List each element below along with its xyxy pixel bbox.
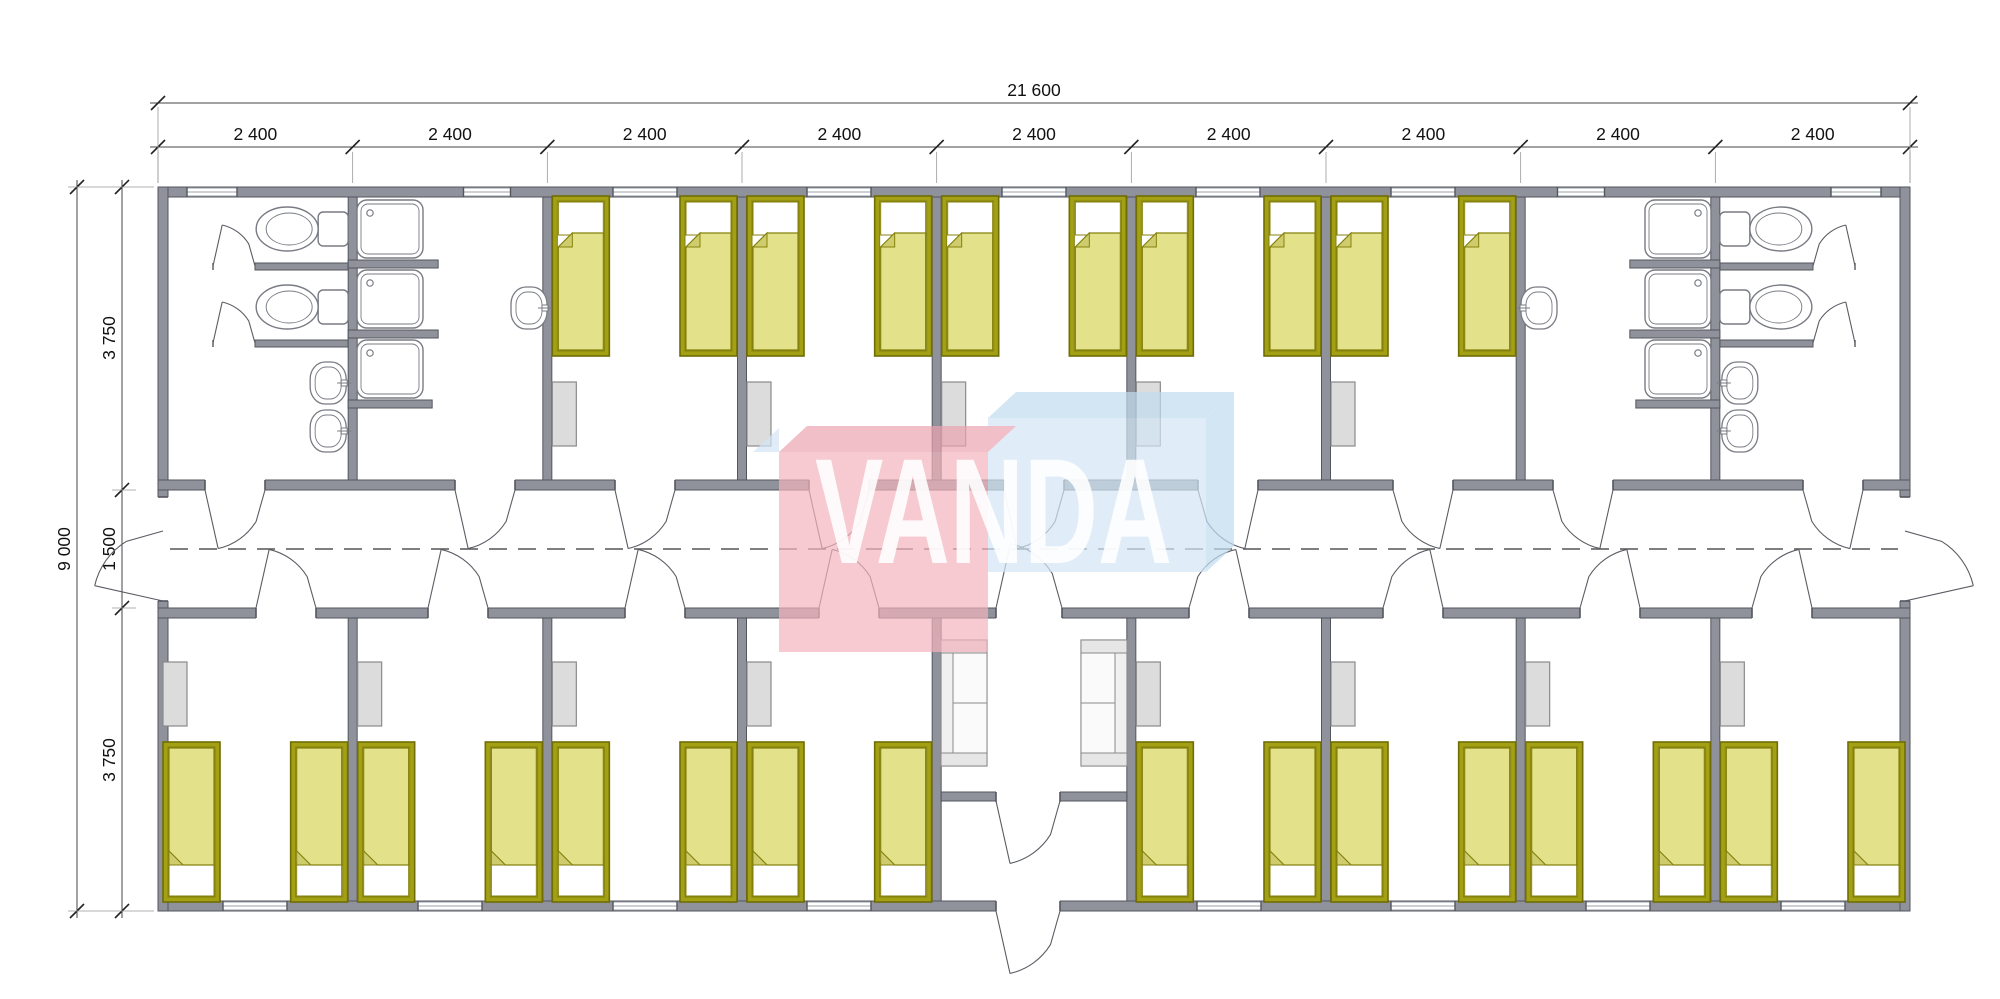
- room-door-opening: [625, 607, 685, 618]
- floor-plan-svg: 21 6002 4002 4002 4002 4002 4002 4002 40…: [0, 0, 2000, 999]
- bed-pillow: [686, 202, 731, 235]
- toilet-bowl: [1750, 207, 1812, 251]
- room-door-opening: [1752, 607, 1812, 618]
- bed-blanket: [1532, 748, 1577, 865]
- bed-blanket: [1337, 233, 1382, 350]
- room-door-opening: [1393, 479, 1453, 490]
- bed-blanket: [558, 748, 603, 865]
- bed-blanket: [1270, 233, 1315, 350]
- bed: [1331, 742, 1388, 902]
- bed-pillow: [1465, 202, 1510, 235]
- sofa: [941, 640, 987, 766]
- bed-blanket: [753, 748, 798, 865]
- bed-blanket: [881, 233, 926, 350]
- room-door-opening: [256, 607, 316, 618]
- partition-wall-bottom-row: [1322, 618, 1331, 901]
- room-door-opening: [1803, 479, 1863, 490]
- bed: [1526, 742, 1583, 902]
- overall-width-label: 21 600: [1007, 80, 1061, 100]
- module-width-label: 2 400: [428, 124, 472, 144]
- bed: [552, 742, 609, 902]
- toilet: [1720, 207, 1812, 251]
- vestibule-door-opening: [996, 791, 1060, 802]
- bed-blanket: [1142, 748, 1187, 865]
- wc-stall-wall: [255, 263, 348, 270]
- shower-stub-wall: [1630, 330, 1720, 338]
- bed: [552, 196, 609, 356]
- bed: [747, 742, 804, 902]
- shower-stub-wall: [348, 330, 438, 338]
- toilet: [256, 285, 348, 329]
- partition-wall-bottom-row: [932, 618, 941, 901]
- shower-tray-outline: [357, 340, 423, 398]
- wardrobe: [1331, 662, 1355, 726]
- module-width-label: 2 400: [817, 124, 861, 144]
- room-door-opening: [1189, 607, 1249, 618]
- wardrobe: [163, 662, 187, 726]
- bed-pillow: [1270, 202, 1315, 235]
- room-door-opening: [615, 479, 675, 490]
- bed: [1848, 742, 1905, 902]
- bed-pillow: [1337, 202, 1382, 235]
- bed-blanket: [1142, 233, 1187, 350]
- bed: [358, 742, 415, 902]
- bed-pillow: [297, 863, 342, 896]
- bed: [747, 196, 804, 356]
- shower-tray: [357, 340, 423, 398]
- bed-blanket: [297, 748, 342, 865]
- entrance-door-opening: [996, 900, 1060, 911]
- bed-blanket: [1854, 748, 1899, 865]
- floor-plan-drawing: 21 6002 4002 4002 4002 4002 4002 4002 40…: [0, 0, 2000, 999]
- bed-blanket: [1270, 748, 1315, 865]
- bed-pillow: [753, 202, 798, 235]
- bed-blanket: [686, 748, 731, 865]
- bed-pillow: [1532, 863, 1577, 896]
- bed-pillow: [364, 863, 409, 896]
- module-width-label: 2 400: [1401, 124, 1445, 144]
- partition-wall-top-row: [1516, 197, 1525, 480]
- lobby-door-opening: [996, 607, 1062, 618]
- bed: [680, 742, 737, 902]
- bed-pillow: [948, 202, 993, 235]
- bed-blanket: [1659, 748, 1704, 865]
- partition-wall-top-row: [543, 197, 552, 480]
- bed-pillow: [1337, 863, 1382, 896]
- logo-blue-block-top: [988, 392, 1234, 418]
- module-width-label: 2 400: [1207, 124, 1251, 144]
- floor-plan-page: 21 6002 4002 4002 4002 4002 4002 4002 40…: [0, 0, 2000, 999]
- toilet-tank: [318, 290, 348, 324]
- depth-section-label: 3 750: [99, 738, 119, 782]
- bed-pillow: [1075, 202, 1120, 235]
- bed-pillow: [169, 863, 214, 896]
- vanda-logo-text: VANDA: [815, 427, 1172, 595]
- toilet-bowl: [256, 285, 318, 329]
- bed: [1264, 742, 1321, 902]
- toilet: [1720, 285, 1812, 329]
- wardrobe: [1136, 662, 1160, 726]
- bed-pillow: [1142, 202, 1187, 235]
- wardrobe: [1526, 662, 1550, 726]
- room-door-opening: [1383, 607, 1443, 618]
- bed-pillow: [881, 863, 926, 896]
- shower-stub-wall: [1630, 260, 1720, 268]
- bed-blanket: [364, 748, 409, 865]
- bed-pillow: [753, 863, 798, 896]
- bed-blanket: [1337, 748, 1382, 865]
- sofa-armrest: [941, 753, 987, 766]
- module-width-label: 2 400: [1012, 124, 1056, 144]
- bed-pillow: [491, 863, 536, 896]
- wardrobe: [1331, 382, 1355, 446]
- partition-wall-bottom-row: [543, 618, 552, 901]
- bed-blanket: [558, 233, 603, 350]
- shower-stub-wall: [348, 260, 438, 268]
- module-width-label: 2 400: [233, 124, 277, 144]
- bed: [1459, 196, 1516, 356]
- wc-stall-wall: [1720, 263, 1813, 270]
- bed: [1136, 742, 1193, 902]
- partition-wall-bottom-row: [738, 618, 747, 901]
- bed-blanket: [1726, 748, 1771, 865]
- shower-tray-outline: [1645, 340, 1711, 398]
- wardrobe: [358, 662, 382, 726]
- room-door-opening: [1553, 479, 1613, 490]
- vestibule-wall: [1060, 792, 1127, 801]
- depth-section-label: 3 750: [99, 316, 119, 360]
- partition-wall-top-row: [1322, 197, 1331, 480]
- bed-pillow: [1854, 863, 1899, 896]
- bed-blanket: [948, 233, 993, 350]
- bed-pillow: [1659, 863, 1704, 896]
- module-width-label: 2 400: [1596, 124, 1640, 144]
- bed: [680, 196, 737, 356]
- shower-tray-outline: [1645, 270, 1711, 328]
- corridor-end-door-opening: [157, 497, 168, 601]
- shower-tray: [357, 200, 423, 258]
- bed: [1264, 196, 1321, 356]
- bed: [1459, 742, 1516, 902]
- shower-tray-outline: [357, 200, 423, 258]
- bed-blanket: [753, 233, 798, 350]
- wardrobe: [747, 662, 771, 726]
- bed-blanket: [881, 748, 926, 865]
- shower-tray: [357, 270, 423, 328]
- wardrobe: [552, 662, 576, 726]
- partition-wall-top-row: [738, 197, 747, 480]
- bed: [1331, 196, 1388, 356]
- partition-wall-bottom-row: [1127, 618, 1136, 901]
- shower-tray: [1645, 340, 1711, 398]
- wardrobe: [747, 382, 771, 446]
- bed-pillow: [558, 863, 603, 896]
- wc-stall-wall: [1720, 340, 1813, 347]
- toilet-tank: [1720, 290, 1750, 324]
- module-width-label: 2 400: [623, 124, 667, 144]
- bed-blanket: [686, 233, 731, 350]
- overall-depth-label: 9 000: [54, 527, 74, 571]
- wardrobe: [1720, 662, 1744, 726]
- module-width-label: 2 400: [1791, 124, 1835, 144]
- sofa-armrest: [1081, 753, 1127, 766]
- bed: [1720, 742, 1777, 902]
- room-door-opening: [205, 479, 265, 490]
- bed: [875, 742, 932, 902]
- bed: [1136, 196, 1193, 356]
- sofa-armrest: [1081, 640, 1127, 653]
- shower-tray: [1645, 200, 1711, 258]
- bed-blanket: [491, 748, 536, 865]
- room-door-opening: [428, 607, 488, 618]
- bed-blanket: [169, 748, 214, 865]
- bed-pillow: [558, 202, 603, 235]
- shower-tray-outline: [1645, 200, 1711, 258]
- logo-blue-block-side: [1206, 392, 1234, 572]
- partition-wall-bottom-row: [1711, 618, 1720, 901]
- bed: [485, 742, 542, 902]
- toilet-tank: [318, 212, 348, 246]
- toilet-bowl: [256, 207, 318, 251]
- toilet: [256, 207, 348, 251]
- bed: [163, 742, 220, 902]
- toilet-bowl: [1750, 285, 1812, 329]
- bed-pillow: [1465, 863, 1510, 896]
- wardrobe: [552, 382, 576, 446]
- room-door-opening: [1580, 607, 1640, 618]
- bed: [1069, 196, 1126, 356]
- bed-pillow: [1270, 863, 1315, 896]
- shower-tray-outline: [357, 270, 423, 328]
- toilet-tank: [1720, 212, 1750, 246]
- partition-wall-bottom-row: [1516, 618, 1525, 901]
- bed: [291, 742, 348, 902]
- bed-blanket: [1465, 748, 1510, 865]
- bed-blanket: [1075, 233, 1120, 350]
- bed-pillow: [1142, 863, 1187, 896]
- shower-stub-wall: [1636, 400, 1720, 408]
- bed-blanket: [1465, 233, 1510, 350]
- room-door-opening: [455, 479, 515, 490]
- bed: [875, 196, 932, 356]
- bed: [1653, 742, 1710, 902]
- bed-pillow: [1726, 863, 1771, 896]
- bed: [942, 196, 999, 356]
- corridor-end-door-opening: [1899, 497, 1910, 601]
- shower-tray: [1645, 270, 1711, 328]
- vestibule-wall: [941, 792, 996, 801]
- wc-stall-wall: [255, 340, 348, 347]
- partition-wall-bottom-row: [348, 618, 357, 901]
- bed-pillow: [881, 202, 926, 235]
- sofa: [1081, 640, 1127, 766]
- bed-pillow: [686, 863, 731, 896]
- shower-stub-wall: [348, 400, 432, 408]
